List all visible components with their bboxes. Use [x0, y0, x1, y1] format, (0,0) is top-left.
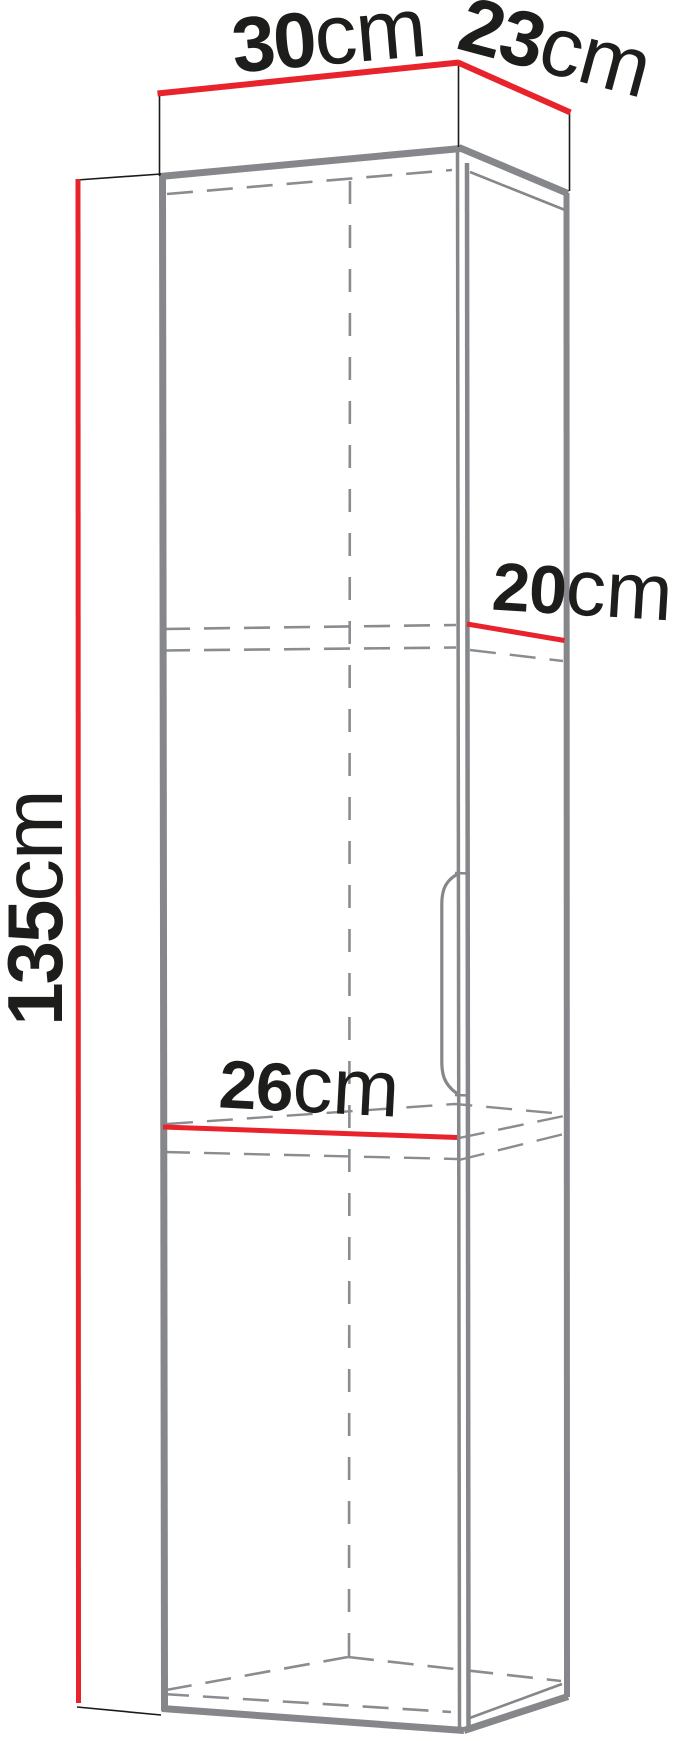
svg-text:135cm: 135cm: [0, 790, 81, 1025]
svg-text:20cm: 20cm: [490, 538, 675, 638]
svg-text:26cm: 26cm: [217, 1035, 402, 1133]
